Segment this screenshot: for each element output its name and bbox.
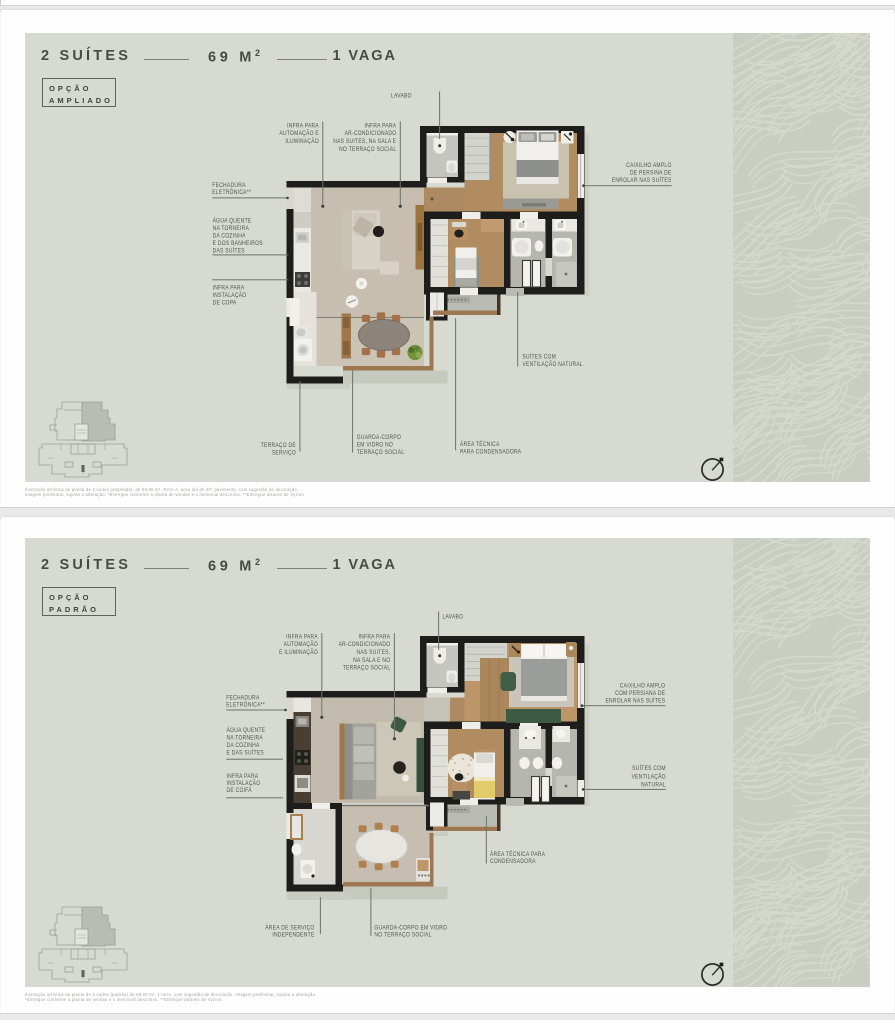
- svg-text:NA TORNEIRA: NA TORNEIRA: [227, 735, 263, 742]
- svg-text:TERRAÇO DE: TERRAÇO DE: [261, 443, 296, 450]
- svg-text:LAVABO: LAVABO: [391, 93, 412, 100]
- svg-text:ILUMINAÇÃO: ILUMINAÇÃO: [285, 137, 319, 145]
- svg-text:ÁGUA QUENTE: ÁGUA QUENTE: [227, 727, 266, 735]
- svg-text:FECHADURA: FECHADURA: [212, 182, 245, 189]
- svg-text:ELETRÔNICA**: ELETRÔNICA**: [212, 189, 251, 197]
- svg-text:DE COPA: DE COPA: [213, 300, 237, 307]
- svg-text:INFRA PARA: INFRA PARA: [358, 634, 390, 641]
- svg-text:E DOS BANHEIROS: E DOS BANHEIROS: [213, 240, 263, 247]
- svg-text:DE COIFA: DE COIFA: [227, 788, 252, 795]
- svg-text:INFRA PARA: INFRA PARA: [287, 123, 319, 130]
- svg-text:ELETRÔNICA**: ELETRÔNICA**: [226, 701, 265, 709]
- svg-text:AUTOMAÇÃO: AUTOMAÇÃO: [284, 641, 319, 649]
- svg-text:ENROLAR NAS SUÍTES: ENROLAR NAS SUÍTES: [612, 176, 672, 184]
- svg-text:DAS SUÍTES: DAS SUÍTES: [213, 247, 245, 255]
- svg-text:E DAS SUÍTES: E DAS SUÍTES: [227, 749, 265, 757]
- svg-text:NO TERRAÇO SOCIAL: NO TERRAÇO SOCIAL: [374, 932, 431, 939]
- svg-text:INFRA PARA: INFRA PARA: [213, 285, 245, 292]
- svg-text:NA TORNEIRA: NA TORNEIRA: [213, 225, 249, 232]
- svg-text:GUARDA-CORPO: GUARDA-CORPO: [357, 435, 402, 442]
- svg-text:ÁGUA QUENTE: ÁGUA QUENTE: [213, 217, 252, 225]
- svg-text:SUÍTES COM: SUÍTES COM: [632, 765, 666, 773]
- svg-text:ENROLAR NAS SUÍTES: ENROLAR NAS SUÍTES: [605, 697, 665, 705]
- svg-text:PARA CONDENSADORA: PARA CONDENSADORA: [460, 449, 521, 456]
- svg-text:TERRAÇO SOCIAL: TERRAÇO SOCIAL: [357, 449, 405, 456]
- svg-text:INSTALAÇÃO: INSTALAÇÃO: [213, 291, 247, 299]
- svg-text:NATURAL: NATURAL: [641, 782, 666, 789]
- svg-text:ÁREA TÉCNICA PARA: ÁREA TÉCNICA PARA: [490, 850, 545, 858]
- svg-text:VENTILAÇÃO NATURAL: VENTILAÇÃO NATURAL: [522, 360, 583, 368]
- svg-text:NA SALA E NO: NA SALA E NO: [353, 657, 391, 664]
- svg-text:AR-CONDICIONADO: AR-CONDICIONADO: [345, 131, 397, 138]
- svg-text:NAS SUITES, NA SALA E: NAS SUITES, NA SALA E: [333, 139, 396, 146]
- svg-text:INFRA PARA: INFRA PARA: [364, 123, 396, 130]
- svg-text:SUÍTES COM: SUÍTES COM: [522, 353, 556, 361]
- svg-text:NAS SUITES,: NAS SUITES,: [356, 650, 390, 657]
- svg-text:LAVABO: LAVABO: [443, 614, 464, 621]
- svg-text:DA COZINHA: DA COZINHA: [213, 233, 246, 240]
- svg-text:DA COZINHA: DA COZINHA: [227, 743, 260, 750]
- svg-text:EM VIDRO NO: EM VIDRO NO: [357, 442, 394, 449]
- svg-text:CAIXILHO AMPLO: CAIXILHO AMPLO: [620, 683, 666, 690]
- svg-text:CONDENSADORA: CONDENSADORA: [490, 859, 536, 866]
- svg-text:INFRA PARA: INFRA PARA: [227, 773, 259, 780]
- svg-text:INSTALAÇÃO: INSTALAÇÃO: [227, 779, 261, 787]
- svg-text:ÁREA DE SERVIÇO: ÁREA DE SERVIÇO: [265, 924, 315, 932]
- svg-text:DE PERSINA DE: DE PERSINA DE: [630, 170, 672, 177]
- svg-text:AR-CONDICIONADO: AR-CONDICIONADO: [339, 642, 391, 649]
- svg-text:FECHADURA: FECHADURA: [226, 695, 259, 702]
- svg-text:SERVIÇO: SERVIÇO: [272, 450, 296, 457]
- svg-text:COM PERSIANA DE: COM PERSIANA DE: [615, 691, 665, 698]
- svg-text:INDEPENDENTE: INDEPENDENTE: [272, 932, 314, 939]
- svg-text:TERRAÇO SOCIAL: TERRAÇO SOCIAL: [343, 665, 391, 672]
- svg-text:AUTOMAÇÃO E: AUTOMAÇÃO E: [279, 130, 319, 138]
- svg-text:GUARDA-CORPO EM VIDRO: GUARDA-CORPO EM VIDRO: [374, 925, 447, 932]
- svg-text:ÁREA TÉCNICA: ÁREA TÉCNICA: [460, 440, 500, 448]
- svg-text:CAIXILHO AMPLO: CAIXILHO AMPLO: [626, 163, 672, 170]
- svg-text:INFRA PARA: INFRA PARA: [286, 634, 318, 641]
- svg-text:VENTILAÇÃO: VENTILAÇÃO: [632, 773, 666, 781]
- svg-text:E ILUMINAÇÃO: E ILUMINAÇÃO: [279, 648, 318, 656]
- svg-text:NO TERRAÇO SOCIAL: NO TERRAÇO SOCIAL: [339, 146, 396, 153]
